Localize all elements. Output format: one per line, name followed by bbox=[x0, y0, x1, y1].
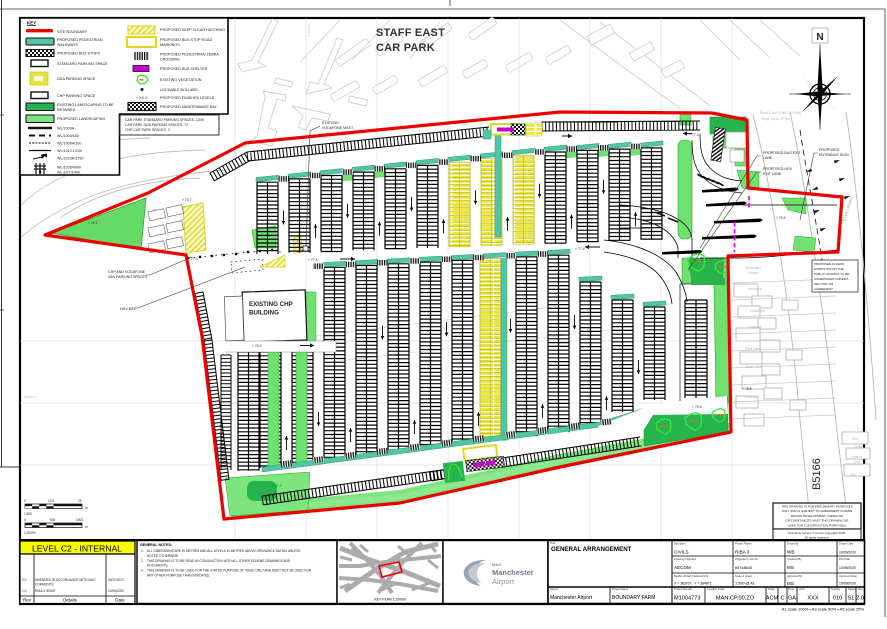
svg-text:Ellwood: Ellwood bbox=[745, 395, 758, 399]
svg-text:CHP PARKING SPACE: CHP PARKING SPACE bbox=[57, 94, 96, 98]
svg-text:+ 76.6: + 76.6 bbox=[692, 405, 702, 409]
svg-text:+ 77.4: + 77.4 bbox=[575, 247, 585, 251]
svg-text:10/09/2020: 10/09/2020 bbox=[839, 551, 856, 555]
svg-text:X = 383707 , Y = 384871: X = 383707 , Y = 384871 bbox=[674, 582, 712, 586]
svg-text:Originator's Job No.: Originator's Job No. bbox=[735, 557, 759, 561]
svg-text:Holme: Holme bbox=[852, 455, 862, 459]
svg-text:CIVILS: CIVILS bbox=[674, 550, 689, 555]
svg-text:WALKWAYS: WALKWAYS bbox=[57, 43, 78, 47]
svg-text:PROPOSED FINISHED LEVELS: PROPOSED FINISHED LEVELS bbox=[160, 96, 215, 100]
svg-text:m: m bbox=[85, 525, 88, 529]
svg-text:WL/1012.1/100: WL/1012.1/100 bbox=[57, 149, 82, 153]
svg-text:PROPOSED BUS EXIT: PROPOSED BUS EXIT bbox=[763, 151, 802, 155]
svg-text:Checked By: Checked By bbox=[787, 557, 802, 561]
svg-text:Drawn Date: Drawn Date bbox=[839, 542, 854, 546]
svg-text:USED FOR CONSTRUCTION PURPOSES: USED FOR CONSTRUCTION PURPOSES. bbox=[788, 523, 847, 527]
svg-text:PROPOSED ACCESS: PROPOSED ACCESS bbox=[814, 262, 844, 266]
svg-text:Ordnance Survey © Crown Copyri: Ordnance Survey © Crown Copyright 2005. bbox=[788, 531, 846, 535]
svg-text:EXIT LANE: EXIT LANE bbox=[763, 172, 782, 176]
svg-text:+ 77.2: + 77.2 bbox=[272, 484, 282, 488]
svg-text:+ 77.3: + 77.3 bbox=[689, 133, 699, 137]
svg-text:LANE: LANE bbox=[763, 156, 773, 160]
svg-text:SITE BOUNDARY: SITE BOUNDARY bbox=[57, 30, 88, 34]
svg-text:AGREEMENT: AGREEMENT bbox=[814, 287, 833, 291]
svg-text:BOUNDARY FARM: BOUNDARY FARM bbox=[612, 595, 655, 601]
svg-text:2.: 2. bbox=[141, 559, 144, 563]
svg-text:12/06/2020: 12/06/2020 bbox=[108, 589, 124, 593]
svg-text:Red: Red bbox=[852, 437, 859, 441]
svg-text:1:500 @ A1: 1:500 @ A1 bbox=[735, 582, 755, 586]
svg-text:Approved Date: Approved Date bbox=[839, 574, 857, 578]
svg-text:Project Name: Project Name bbox=[612, 587, 629, 591]
svg-text:ALL DIMENSIONS ARE IN METRES A: ALL DIMENSIONS ARE IN METRES AND ALL LEV… bbox=[147, 549, 300, 553]
svg-text:All rights reserved.: All rights reserved. bbox=[805, 536, 830, 540]
svg-text:SECTION 278: SECTION 278 bbox=[814, 282, 834, 286]
svg-text:Origin: Origin bbox=[768, 587, 776, 591]
svg-text:1000: 1000 bbox=[76, 518, 83, 522]
svg-text:+ XX.X: + XX.X bbox=[136, 96, 148, 100]
svg-text:Manchester: Manchester bbox=[492, 568, 534, 577]
svg-text:N: N bbox=[816, 32, 823, 43]
svg-text:NOTED OTHERWISE.: NOTED OTHERWISE. bbox=[147, 554, 179, 558]
svg-text:Project Number: Project Number bbox=[674, 587, 693, 591]
svg-text:3.: 3. bbox=[141, 569, 144, 573]
svg-text:12.5: 12.5 bbox=[48, 499, 54, 503]
svg-text:PROPOSED LANDSCAPING: PROPOSED LANDSCAPING bbox=[57, 117, 105, 121]
svg-text:WORKS WITHIN THE: WORKS WITHIN THE bbox=[814, 267, 844, 271]
svg-text:Scale & sheet: Scale & sheet bbox=[735, 574, 752, 578]
svg-text:Lea: Lea bbox=[854, 460, 860, 464]
svg-text:EXISTING VEGETATION: EXISTING VEGETATION bbox=[160, 78, 202, 82]
svg-text:STANDARD PARKING SPACE: STANDARD PARKING SPACE bbox=[57, 62, 108, 66]
svg-text:CHP AND VODAFONE: CHP AND VODAFONE bbox=[108, 270, 146, 274]
svg-text:+ 76.8: + 76.8 bbox=[742, 387, 752, 391]
svg-text:THIS DRAWING IS TO BE USED FOR: THIS DRAWING IS TO BE USED FOR THE STATE… bbox=[147, 569, 312, 573]
svg-text:ACC: ACC bbox=[799, 587, 805, 591]
svg-text:STAFF EAST: STAFF EAST bbox=[376, 27, 445, 39]
svg-text:UNDERTAKEN UNDER A: UNDERTAKEN UNDER A bbox=[814, 277, 849, 281]
svg-text:WB: WB bbox=[787, 550, 794, 555]
svg-text:Title: Title bbox=[550, 541, 555, 545]
svg-text:M1004773: M1004773 bbox=[674, 596, 700, 602]
svg-text:DESIGN DEVELOPMENT. UNDER NO: DESIGN DEVELOPMENT. UNDER NO bbox=[791, 514, 844, 518]
svg-text:XXX: XXX bbox=[807, 596, 818, 602]
svg-text:THIS DRAWING IS TO BE READ IN: THIS DRAWING IS TO BE READ IN CONJUNCTIO… bbox=[147, 559, 291, 563]
svg-text:60748845: 60748845 bbox=[735, 566, 752, 570]
svg-text:PROPOSED PEDESTRIAN: PROPOSED PEDESTRIAN bbox=[57, 38, 103, 42]
svg-text:House: House bbox=[748, 271, 758, 275]
svg-text:RETAINED: RETAINED bbox=[57, 108, 76, 112]
svg-text:ONLY AND IS SUBJECT TO AMENDME: ONLY AND IS SUBJECT TO AMENDMENT DURING bbox=[782, 509, 853, 513]
svg-text:COMMENTS: COMMENTS bbox=[35, 583, 54, 587]
svg-text:CIRCUMSTANCES MUST THIS DRAWIN: CIRCUMSTANCES MUST THIS DRAWING BE bbox=[786, 519, 849, 523]
svg-text:Park View: Park View bbox=[745, 347, 762, 351]
svg-text:BUILDING: BUILDING bbox=[249, 310, 279, 317]
svg-text:25: 25 bbox=[78, 499, 82, 503]
svg-text:East View: East View bbox=[746, 365, 762, 369]
svg-text:10/09/2020: 10/09/2020 bbox=[839, 566, 856, 570]
svg-text:WL/1004/100: WL/1004/100 bbox=[57, 134, 79, 138]
svg-text:Plot Date: Plot Date bbox=[839, 557, 851, 561]
svg-text:Boundary: Boundary bbox=[746, 266, 762, 270]
svg-text:Kenbera: Kenbera bbox=[748, 287, 762, 291]
svg-text:0: 0 bbox=[24, 518, 26, 522]
svg-text:Drawn By: Drawn By bbox=[787, 542, 799, 546]
svg-text:MAN.CP.00.ZO: MAN.CP.00.ZO bbox=[716, 596, 755, 602]
svg-text:AMENDED IN ACCORDANCE WITH MAG: AMENDED IN ACCORDANCE WITH MAG bbox=[35, 578, 96, 582]
svg-text:2.0: 2.0 bbox=[856, 596, 864, 602]
svg-text:RIBA 3 ISSUE: RIBA 3 ISSUE bbox=[35, 589, 55, 593]
svg-text:DOCUMENTS.: DOCUMENTS. bbox=[147, 564, 169, 568]
svg-text:THIS DRAWING IS FOR PRELIMINAR: THIS DRAWING IS FOR PRELIMINARY PURPOSES bbox=[781, 505, 852, 509]
svg-text:WL.EXT/1400: WL.EXT/1400 bbox=[57, 171, 80, 175]
svg-text:ANY OTHER PURPOSE THAN INDICAT: ANY OTHER PURPOSE THAN INDICATED. bbox=[147, 574, 210, 578]
svg-text:KEY PLAN 1:20000: KEY PLAN 1:20000 bbox=[374, 598, 406, 602]
svg-text:Rund Court & Mill Out Bldg: Rund Court & Mill Out Bldg bbox=[760, 111, 801, 115]
svg-text:KEY: KEY bbox=[27, 21, 36, 26]
svg-text:Del: Del bbox=[850, 473, 856, 477]
svg-text:CHP CAR PARK SPACES: 3: CHP CAR PARK SPACES: 3 bbox=[125, 128, 170, 132]
svg-text:GENERAL ARRANGEMENT: GENERAL ARRANGEMENT bbox=[551, 546, 632, 553]
svg-text:500: 500 bbox=[50, 518, 56, 522]
svg-text:Details: Details bbox=[63, 598, 78, 603]
svg-text:09/11/2020: 09/11/2020 bbox=[108, 578, 124, 582]
svg-text:383100 E: 383100 E bbox=[307, 24, 311, 37]
svg-text:Manchester Airport: Manchester Airport bbox=[550, 595, 593, 601]
svg-text:PUBLIC HIGHWAY TO BE: PUBLIC HIGHWAY TO BE bbox=[814, 272, 849, 276]
svg-text:10/09/2020: 10/09/2020 bbox=[839, 582, 856, 586]
svg-text:EXISTING: EXISTING bbox=[322, 121, 339, 125]
svg-text:1:20000: 1:20000 bbox=[24, 531, 36, 535]
svg-text:1:500: 1:500 bbox=[24, 512, 32, 516]
svg-text:PROPOSED HGV: PROPOSED HGV bbox=[763, 167, 793, 171]
svg-text:Status: Status bbox=[848, 587, 856, 591]
svg-text:MS: MS bbox=[787, 581, 794, 586]
svg-text:LOCKABLE BOLLARD: LOCKABLE BOLLARD bbox=[160, 88, 198, 92]
svg-text:Project Phase: Project Phase bbox=[735, 542, 752, 546]
svg-text:WL/1009A/100: WL/1009A/100 bbox=[57, 142, 81, 146]
svg-text:CAR PARK DDA PARKING SPACES: 7: CAR PARK DDA PARKING SPACES: 72 bbox=[125, 123, 188, 127]
svg-text:EXISTING CHP: EXISTING CHP bbox=[249, 301, 293, 308]
svg-text:Daytona: Daytona bbox=[748, 325, 761, 329]
svg-text:Cliffe: Cliffe bbox=[854, 445, 862, 449]
svg-text:MAG: MAG bbox=[492, 562, 501, 567]
svg-text:1.: 1. bbox=[141, 549, 144, 553]
svg-text:WL/1000A: WL/1000A bbox=[57, 127, 75, 131]
svg-text:384800 N: 384800 N bbox=[24, 395, 37, 399]
svg-text:VODAFONE MAST: VODAFONE MAST bbox=[322, 126, 354, 130]
svg-text:Rev: Rev bbox=[23, 598, 32, 603]
svg-text:S1: S1 bbox=[848, 596, 855, 602]
svg-text:PROPOSED: PROPOSED bbox=[819, 148, 840, 152]
svg-text:ENTRANCE SIGN: ENTRANCE SIGN bbox=[819, 153, 849, 157]
svg-text:GENERAL NOTES:: GENERAL NOTES: bbox=[140, 543, 172, 547]
svg-text:Building British National Grid: Building British National Grid bbox=[674, 574, 709, 578]
svg-text:DDA PARKING SPACE: DDA PARKING SPACE bbox=[57, 77, 96, 81]
svg-text:1.0: 1.0 bbox=[22, 589, 27, 593]
svg-text:0: 0 bbox=[24, 499, 26, 503]
svg-text:MARKINGS: MARKINGS bbox=[160, 43, 180, 47]
svg-text:Bldg, Lot & CP Stn: Bldg, Lot & CP Stn bbox=[762, 117, 790, 121]
svg-text:+ 76.7: + 76.7 bbox=[182, 198, 192, 202]
svg-text:CROSSING: CROSSING bbox=[160, 58, 180, 62]
svg-text:LEVEL C2 - INTERNAL: LEVEL C2 - INTERNAL bbox=[32, 544, 122, 554]
svg-text:Location Code: Location Code bbox=[707, 587, 725, 591]
svg-text:Airport: Airport bbox=[550, 587, 558, 591]
svg-text:+ 76.1: + 76.1 bbox=[88, 221, 98, 225]
svg-text:PROPOSED BUS STOPS: PROPOSED BUS STOPS bbox=[57, 52, 101, 56]
svg-text:VAN PARKING SPACES: VAN PARKING SPACES bbox=[108, 275, 148, 279]
svg-text:Hulstfield: Hulstfield bbox=[750, 309, 765, 313]
svg-text:Number: Number bbox=[831, 587, 841, 591]
svg-text:C: C bbox=[780, 596, 784, 602]
svg-text:WL/1036/4000: WL/1036/4000 bbox=[57, 166, 81, 170]
svg-text:Airport: Airport bbox=[492, 577, 515, 586]
svg-text:EXISTING LANDSCAPING TO BE: EXISTING LANDSCAPING TO BE bbox=[57, 103, 114, 107]
svg-text:+ 76.9: + 76.9 bbox=[776, 216, 786, 220]
svg-text:PROPOSED KEEP CLEAR HATCHING: PROPOSED KEEP CLEAR HATCHING bbox=[160, 28, 225, 32]
svg-text:CAR PARK STANDARD PARKING SPAC: CAR PARK STANDARD PARKING SPACES: 1349 bbox=[125, 118, 204, 122]
svg-text:AECOM: AECOM bbox=[674, 565, 691, 570]
svg-text:GA: GA bbox=[788, 596, 796, 602]
svg-text:WL/1023A/3750: WL/1023A/3750 bbox=[57, 157, 83, 161]
svg-text:2.0: 2.0 bbox=[22, 578, 27, 582]
svg-text:010: 010 bbox=[833, 596, 842, 602]
svg-text:Approved By: Approved By bbox=[787, 574, 803, 578]
svg-text:B5166: B5166 bbox=[811, 458, 823, 490]
svg-text:Date: Date bbox=[115, 598, 125, 603]
svg-text:PROPOSED BUS STOP ROAD: PROPOSED BUS STOP ROAD bbox=[160, 38, 212, 42]
svg-text:Rev: Rev bbox=[858, 587, 863, 591]
svg-text:Zone: Zone bbox=[788, 587, 795, 591]
svg-text:RIBA 3: RIBA 3 bbox=[735, 550, 750, 555]
svg-text:PROPOSED PEDESTRIAN ZEBRA: PROPOSED PEDESTRIAN ZEBRA bbox=[160, 53, 219, 57]
svg-text:PROPOSED MAINTENANCE BAY: PROPOSED MAINTENANCE BAY bbox=[160, 105, 217, 109]
svg-text:+ 77.4: + 77.4 bbox=[308, 258, 318, 262]
svg-text:Drawing Originator: Drawing Originator bbox=[674, 557, 697, 561]
svg-text:Discipline: Discipline bbox=[674, 542, 686, 546]
svg-text:A1 scale 100% • A3 scale 50% •: A1 scale 100% • A3 scale 50% • A5 scale … bbox=[782, 607, 865, 612]
svg-text:+ 77.3: + 77.3 bbox=[188, 257, 198, 261]
svg-text:ACM: ACM bbox=[766, 596, 779, 602]
svg-text:PROPOSED BUS SHELTER: PROPOSED BUS SHELTER bbox=[160, 67, 208, 71]
svg-text:MS: MS bbox=[787, 565, 794, 570]
svg-text:m: m bbox=[85, 506, 88, 510]
svg-text:+ 76.9: + 76.9 bbox=[252, 344, 262, 348]
svg-text:HGV BAY: HGV BAY bbox=[120, 307, 136, 311]
svg-text:CAR PARK: CAR PARK bbox=[376, 42, 435, 54]
